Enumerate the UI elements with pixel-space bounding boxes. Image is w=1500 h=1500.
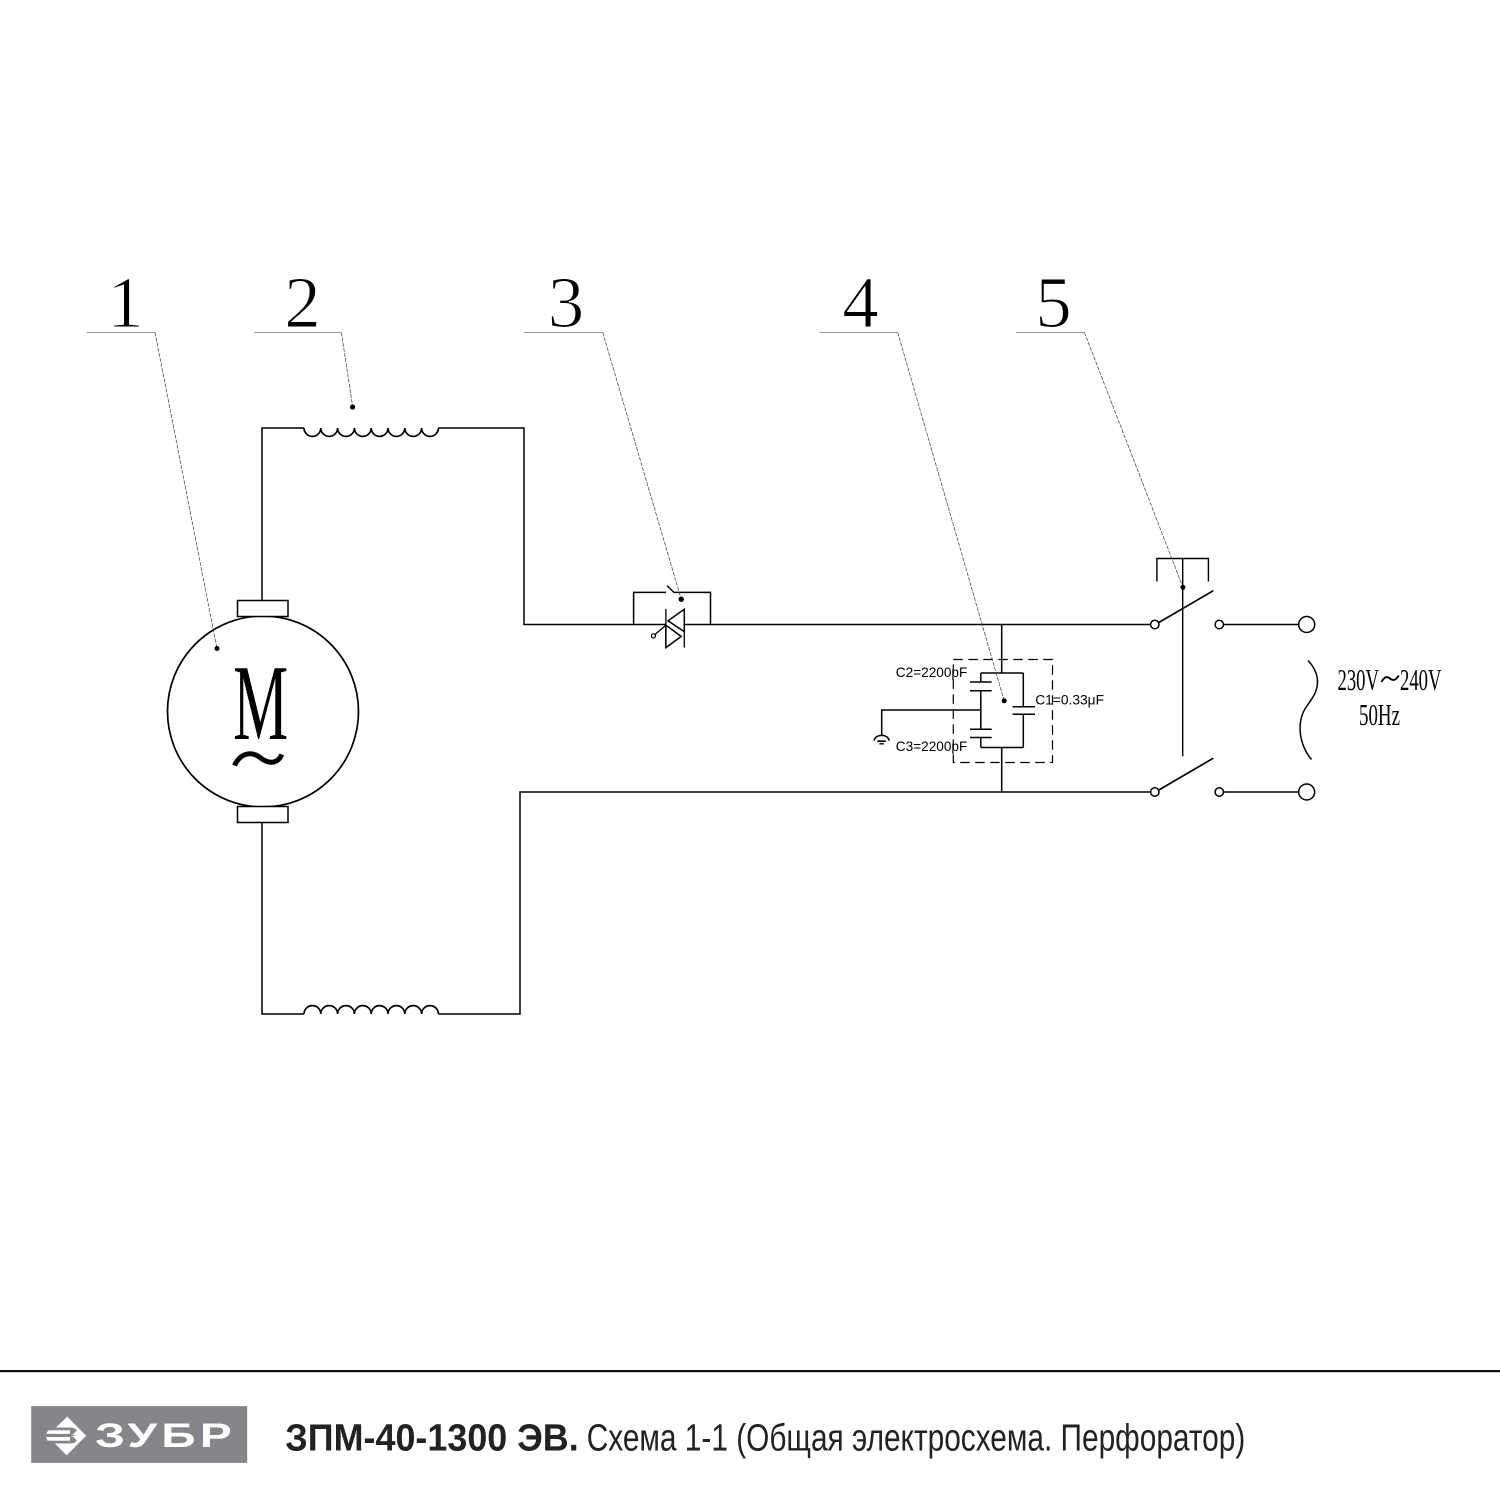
svg-text:1: 1 (107, 262, 144, 343)
svg-text:2: 2 (284, 262, 321, 343)
svg-text:Схема 1-1 (Общая электросхема.: Схема 1-1 (Общая электросхема. Перфорато… (587, 1417, 1246, 1459)
svg-text:50Hz: 50Hz (1359, 697, 1400, 732)
svg-text:C1=0.33μF: C1=0.33μF (1035, 691, 1104, 707)
svg-text:230V: 230V (1338, 662, 1380, 697)
svg-text:ЗУБР: ЗУБР (95, 1417, 236, 1455)
svg-text:C2=2200pF: C2=2200pF (896, 664, 968, 680)
svg-text:C3=2200pF: C3=2200pF (896, 738, 968, 754)
svg-text:240V: 240V (1400, 662, 1442, 697)
svg-text:ЗПМ-40-1300 ЭВ.: ЗПМ-40-1300 ЭВ. (285, 1417, 578, 1459)
svg-text:5: 5 (1035, 262, 1072, 343)
svg-text:M: M (233, 644, 288, 763)
svg-text:3: 3 (548, 262, 585, 343)
svg-text:4: 4 (842, 262, 879, 343)
